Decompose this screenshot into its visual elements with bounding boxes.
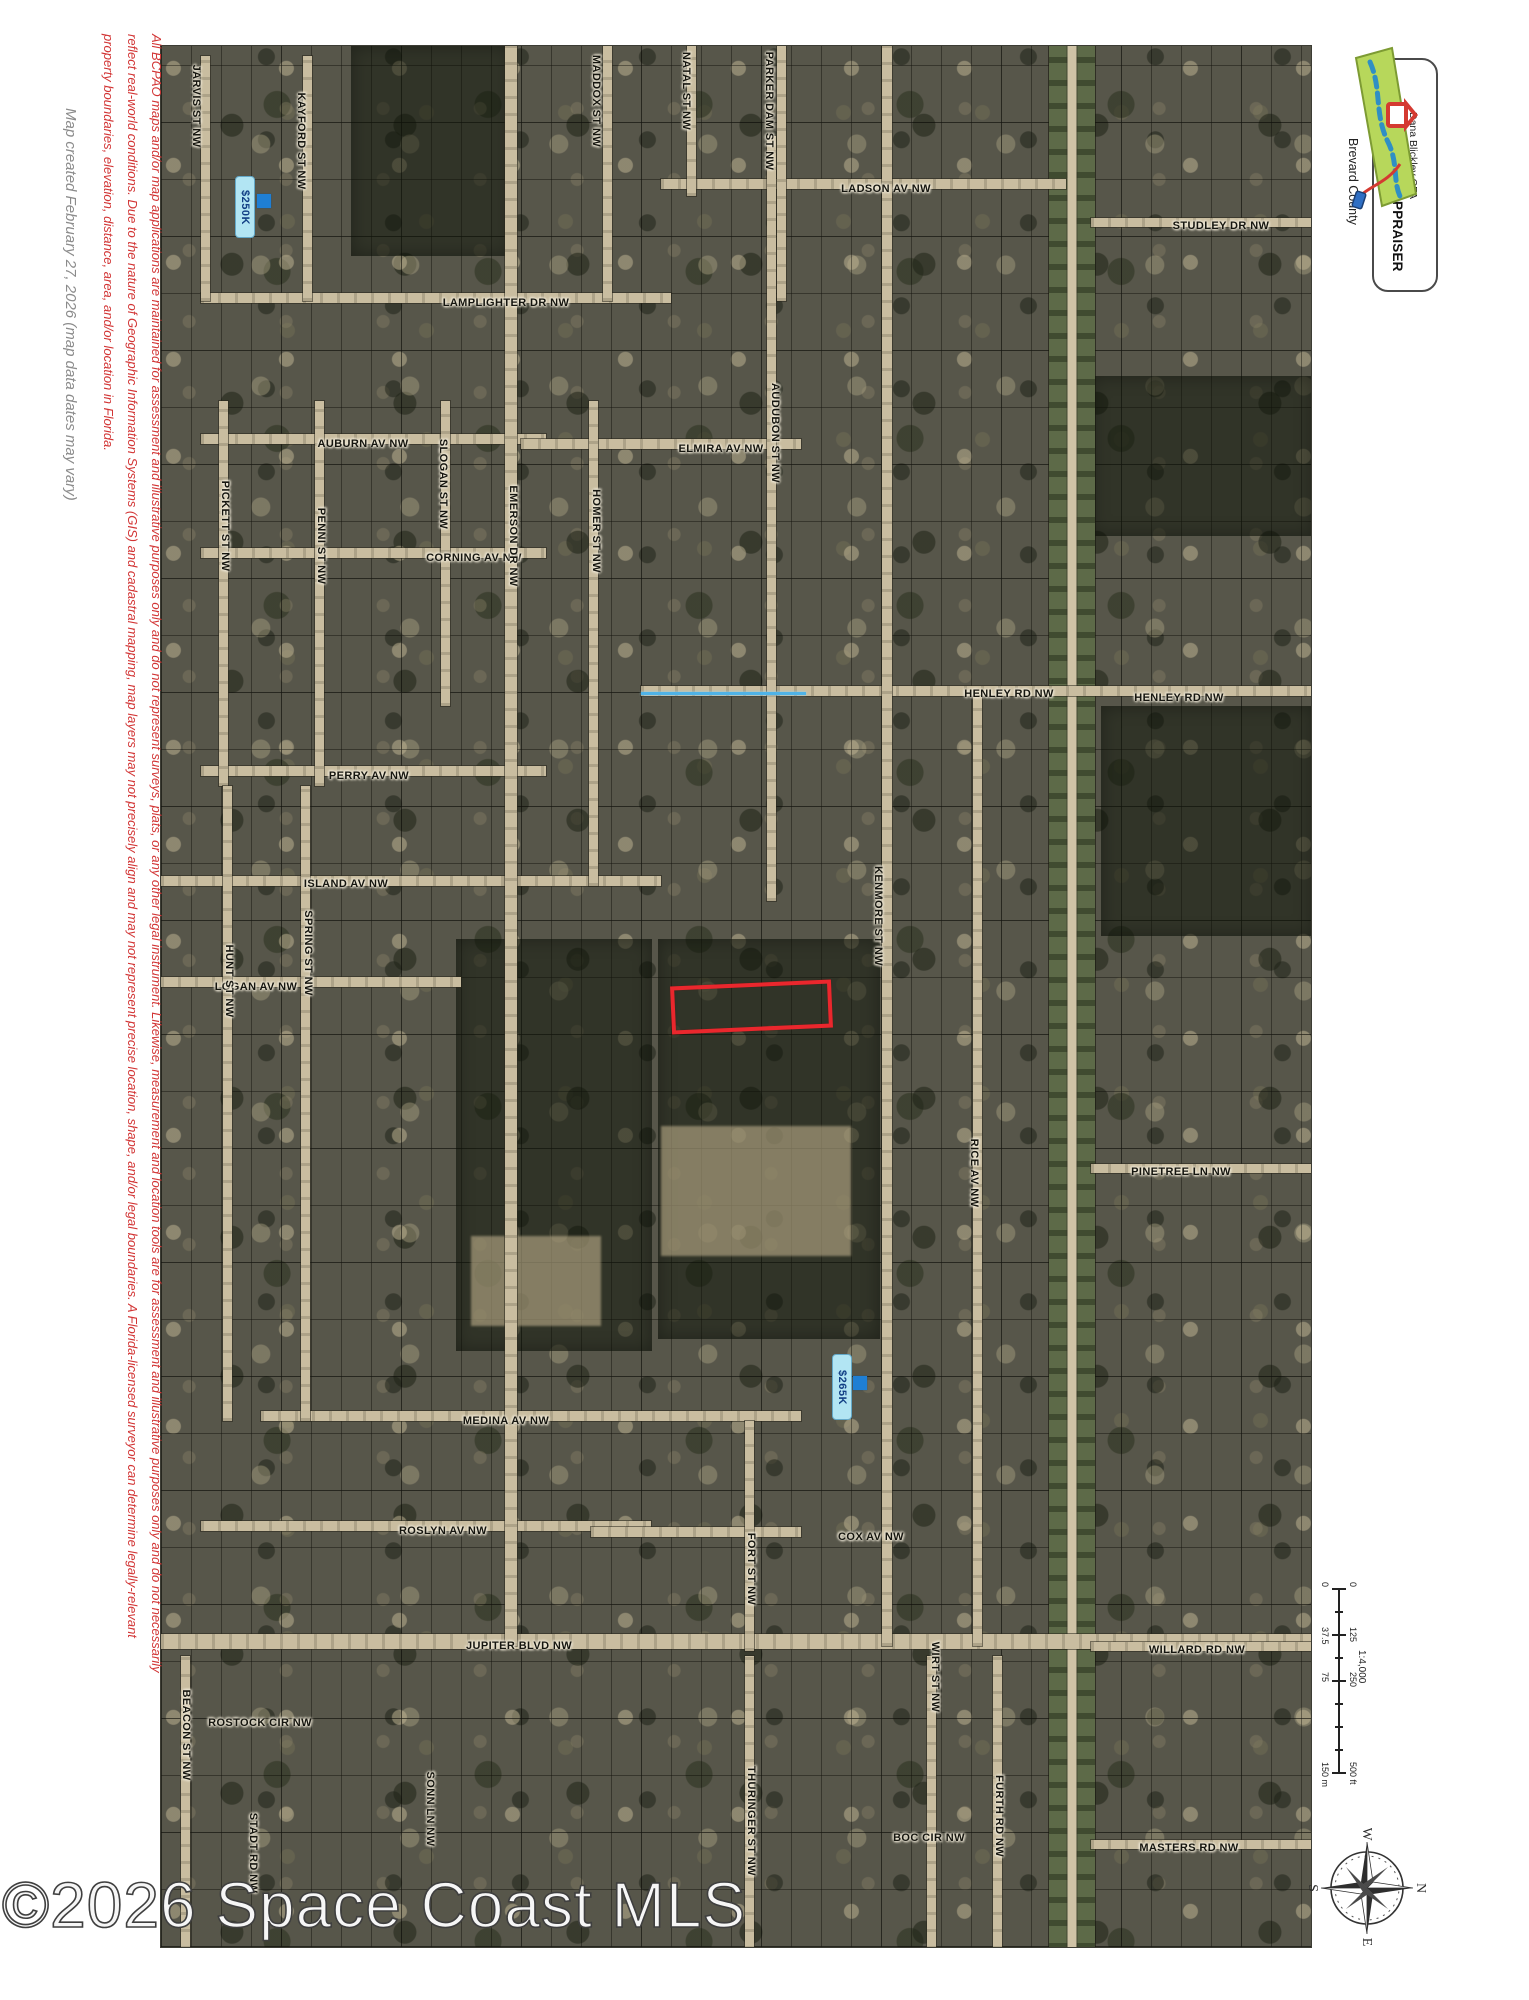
listing-location-dot[interactable]	[257, 194, 271, 208]
street-label: SLOGAN ST NW	[437, 439, 449, 529]
cleared-lot-area	[661, 1126, 851, 1256]
street-label: PARKER DAM ST NW	[763, 52, 775, 171]
street-label: STUDLEY DR NW	[1173, 220, 1270, 232]
property-appraiser-logo: Dana Blickley CFA PROPERTY APPRAISER Bre…	[1296, 52, 1444, 300]
street-label: FORT ST NW	[745, 1533, 757, 1605]
street-label: AUDUBON ST NW	[769, 383, 781, 483]
subject-parcel-highlight[interactable]	[670, 980, 833, 1035]
street-road	[223, 786, 232, 1421]
map-created-note: Map created February 27, 2026 (map data …	[62, 108, 79, 1808]
street-label: HOMER ST NW	[590, 489, 602, 573]
price-marker[interactable]: $250K	[235, 176, 255, 238]
street-road	[315, 401, 324, 786]
street-label: WILLARD RD NW	[1149, 1644, 1245, 1656]
scale-meter-label: 37.5	[1320, 1627, 1330, 1645]
scale-tick	[1332, 1588, 1346, 1590]
street-label: ELMIRA AV NW	[678, 443, 763, 455]
compass-west-label: W	[1359, 1828, 1374, 1841]
street-label: LAMPLIGHTER DR NW	[443, 297, 570, 309]
street-label: PENNI ST NW	[315, 508, 327, 585]
wooded-parcel-block	[351, 46, 511, 256]
compass-rose: N E S W	[1307, 1828, 1427, 1948]
street-label: HENLEY RD NW	[1134, 692, 1224, 704]
scale-tick	[1332, 1772, 1346, 1774]
street-label: THURINGER ST NW	[745, 1766, 757, 1876]
appraiser-name: Dana Blickley CFA	[1408, 112, 1420, 272]
street-road	[591, 1527, 801, 1537]
waterway-line	[641, 692, 806, 695]
county-name: Brevard County	[1346, 138, 1360, 225]
street-label: PICKETT ST NW	[219, 481, 231, 572]
street-label: ROSTOCK CIR NW	[208, 1717, 312, 1729]
street-road	[219, 401, 228, 786]
scale-ratio: 1:4,000	[1356, 1650, 1367, 1683]
street-label: HUNT ST NW	[223, 944, 235, 1017]
mls-watermark: ©2026 Space Coast MLS	[2, 1868, 746, 1942]
listing-location-dot[interactable]	[853, 1376, 867, 1390]
highway-roadway	[1068, 46, 1077, 1948]
highway-corridor	[1049, 46, 1095, 1948]
scale-meter-label: 0	[1320, 1582, 1330, 1587]
compass-north-label: N	[1413, 1883, 1427, 1893]
street-label: JARVIS ST NW	[190, 65, 202, 148]
street-label: HENLEY RD NW	[964, 688, 1054, 700]
street-label: EMERSON DR NW	[507, 485, 519, 586]
street-label: LADSON AV NW	[841, 183, 931, 195]
street-road	[882, 46, 892, 1646]
street-label: KENMORE ST NW	[872, 866, 884, 966]
map-canvas[interactable]: LADSON AV NWSTUDLEY DR NWLAMPLIGHTER DR …	[160, 45, 1312, 1948]
scale-feet-label: 0	[1348, 1582, 1358, 1587]
scale-tick	[1335, 1657, 1343, 1659]
street-label: ROSLYN AV NW	[399, 1525, 487, 1537]
scale-meter-label: 150 m	[1320, 1762, 1330, 1787]
street-label: PINETREE LN NW	[1131, 1166, 1231, 1178]
street-label: PERRY AV NW	[329, 770, 409, 782]
cleared-lot-area	[471, 1236, 601, 1326]
street-label: SONN LN NW	[424, 1772, 436, 1847]
compass-east-label: E	[1359, 1938, 1374, 1947]
street-road	[201, 293, 671, 303]
street-label: ISLAND AV NW	[304, 878, 388, 890]
scale-tick	[1335, 1611, 1343, 1613]
appraiser-title: PROPERTY APPRAISER	[1391, 112, 1406, 272]
bcpao-map-printout: LADSON AV NWSTUDLEY DR NWLAMPLIGHTER DR …	[0, 0, 1529, 2000]
street-label: BOC CIR NW	[893, 1832, 965, 1844]
street-label: KAYFORD ST NW	[295, 92, 307, 189]
scale-meter-label: 75	[1320, 1672, 1330, 1682]
bcpao-disclaimer-text: All BCPAO maps and/or map applications a…	[92, 34, 168, 1674]
street-label: WIRT ST NW	[929, 1642, 941, 1713]
wooded-parcel-block	[1101, 706, 1312, 936]
compass-south-label: S	[1307, 1884, 1320, 1892]
street-label: JUPITER BLVD NW	[466, 1640, 572, 1652]
scale-tick	[1335, 1703, 1343, 1705]
street-label: MADDOX ST NW	[590, 55, 602, 147]
street-label: SPRING ST NW	[302, 910, 314, 995]
street-label: BEACON ST NW	[180, 1690, 192, 1781]
street-label: NATAL ST NW	[680, 52, 692, 130]
wooded-parcel-block	[1091, 376, 1312, 536]
street-road	[603, 46, 612, 301]
scale-tick	[1332, 1634, 1346, 1636]
street-road	[161, 876, 661, 886]
street-label: RICE AV NW	[968, 1139, 980, 1208]
scale-tick	[1335, 1749, 1343, 1751]
logo-pill: Dana Blickley CFA PROPERTY APPRAISER	[1372, 58, 1438, 292]
street-road	[777, 46, 786, 301]
street-label: MEDINA AV NW	[463, 1415, 549, 1427]
street-label: FURTH RD NW	[993, 1775, 1005, 1857]
price-marker[interactable]: $265K	[832, 1354, 852, 1420]
street-road	[767, 136, 776, 901]
scale-feet-label: 125	[1348, 1627, 1358, 1642]
scale-tick	[1332, 1680, 1346, 1682]
scale-bar: 0125250500 ft 037.575150 m 1:4,000	[1316, 1588, 1376, 1788]
street-road	[589, 401, 598, 886]
street-label: COX AV NW	[838, 1531, 904, 1543]
street-label: AUBURN AV NW	[318, 438, 409, 450]
street-label: MASTERS RD NW	[1139, 1842, 1238, 1854]
scale-tick	[1335, 1726, 1343, 1728]
scale-feet-label: 500 ft	[1348, 1762, 1358, 1785]
street-road	[505, 46, 517, 1646]
